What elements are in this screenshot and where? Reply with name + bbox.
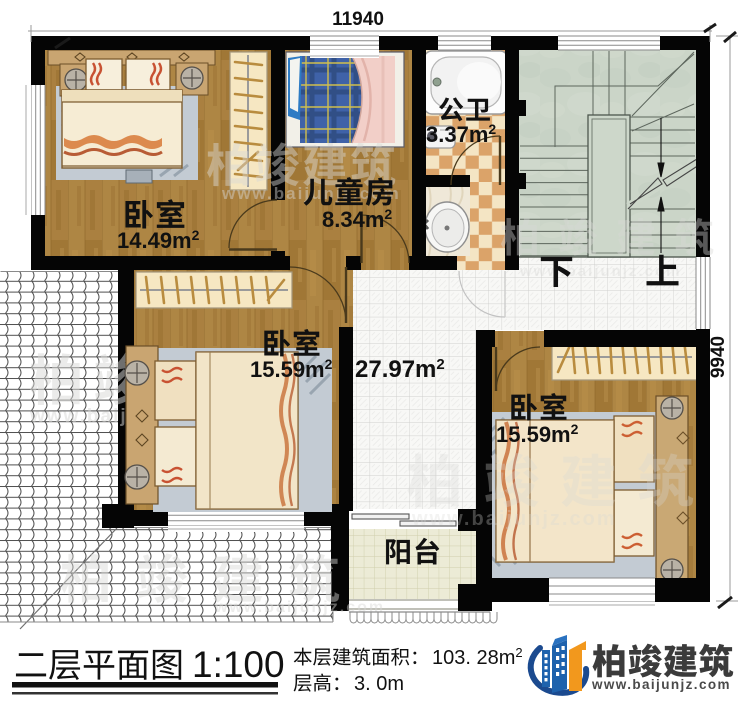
svg-text:14.49m2: 14.49m2	[117, 227, 200, 253]
svg-text:9940: 9940	[708, 336, 729, 378]
svg-text:15.59m2: 15.59m2	[496, 421, 579, 447]
svg-text:3. 0m: 3. 0m	[354, 673, 404, 695]
svg-text:www.baijunjz.com: www.baijunjz.com	[411, 508, 617, 530]
svg-text:www.baijunjz.com: www.baijunjz.com	[591, 677, 731, 692]
svg-text:8.34m2: 8.34m2	[322, 206, 392, 232]
svg-text:27.97m2: 27.97m2	[355, 356, 445, 383]
svg-text:15.59m2: 15.59m2	[250, 356, 333, 382]
svg-text:1:100: 1:100	[192, 644, 285, 685]
svg-text:103. 28m2: 103. 28m2	[432, 645, 523, 669]
svg-text:3.37m2: 3.37m2	[426, 121, 496, 147]
svg-text:www.baijunjz.com: www.baijunjz.com	[214, 599, 385, 616]
svg-text:11940: 11940	[332, 9, 384, 30]
svg-text:www.baijunjz.com: www.baijunjz.com	[519, 263, 681, 280]
